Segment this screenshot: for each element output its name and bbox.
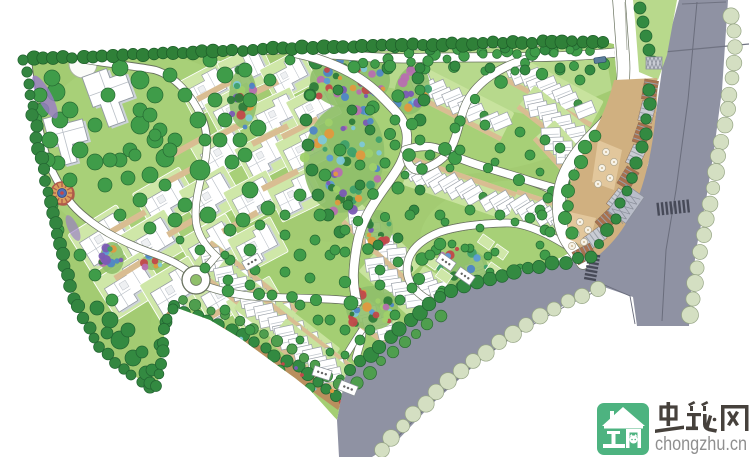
svg-text:chongzhu.cn: chongzhu.cn <box>655 433 747 455</box>
